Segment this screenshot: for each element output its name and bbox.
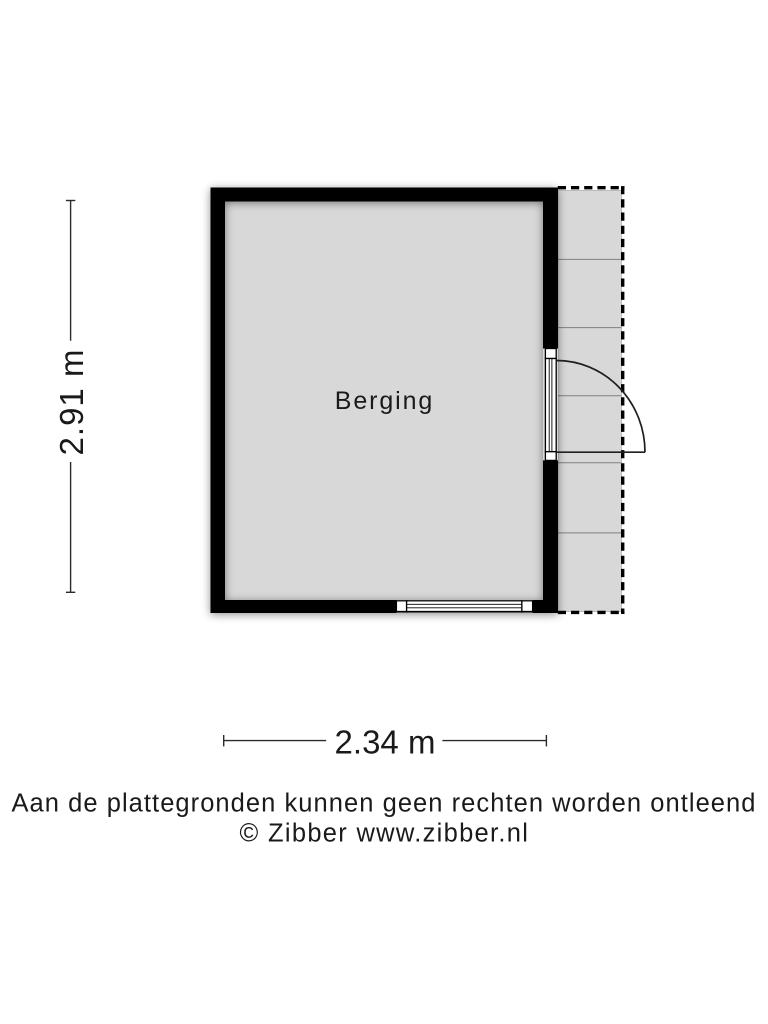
svg-text:2.91 m: 2.91 m (53, 349, 90, 456)
svg-text:2.34 m: 2.34 m (335, 723, 436, 760)
svg-text:Aan de plattegronden kunnen ge: Aan de plattegronden kunnen geen rechten… (11, 790, 756, 818)
svg-text:© Zibber www.zibber.nl: © Zibber www.zibber.nl (240, 820, 530, 848)
svg-text:Berging: Berging (335, 387, 434, 415)
